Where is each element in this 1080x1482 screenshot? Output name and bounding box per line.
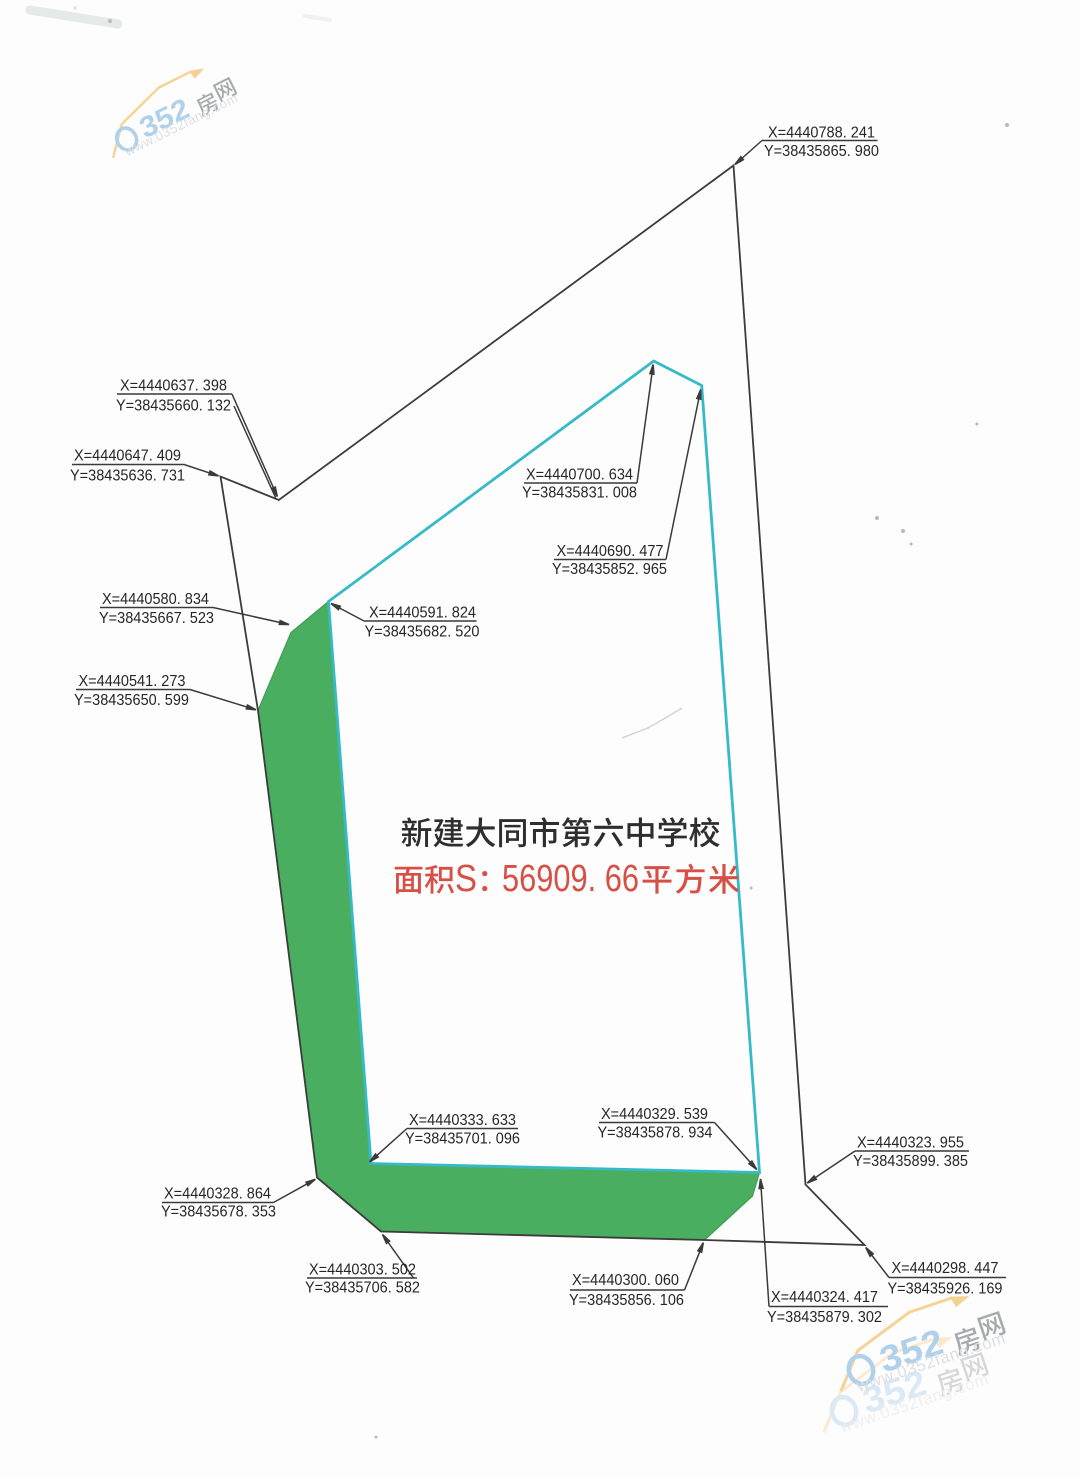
svg-text:X=4440324. 417: X=4440324. 417 xyxy=(771,1289,878,1306)
svg-text:X=4440300. 060: X=4440300. 060 xyxy=(572,1272,679,1289)
svg-text:X=4440637. 398: X=4440637. 398 xyxy=(120,378,227,395)
svg-text:Y=38435878. 934: Y=38435878. 934 xyxy=(598,1125,713,1142)
svg-text:Y=38435660. 132: Y=38435660. 132 xyxy=(116,398,231,415)
svg-text:X=4440329. 539: X=4440329. 539 xyxy=(601,1106,708,1123)
svg-text:X=4440328. 864: X=4440328. 864 xyxy=(164,1186,271,1203)
svg-text:X=4440591. 824: X=4440591. 824 xyxy=(369,605,476,622)
svg-text:X=4440541. 273: X=4440541. 273 xyxy=(79,673,186,690)
svg-text:X=4440298. 447: X=4440298. 447 xyxy=(892,1260,999,1277)
svg-text:Y=38435667. 523: Y=38435667. 523 xyxy=(99,610,214,627)
svg-text:X=4440788. 241: X=4440788. 241 xyxy=(768,125,875,142)
svg-text:Y=38435879. 302: Y=38435879. 302 xyxy=(767,1309,882,1326)
svg-text:Y=38435865. 980: Y=38435865. 980 xyxy=(764,143,879,160)
svg-text:S: S xyxy=(455,858,477,900)
svg-text:Y=38435926. 169: Y=38435926. 169 xyxy=(888,1281,1003,1298)
svg-text:X=4440303. 502: X=4440303. 502 xyxy=(309,1262,416,1279)
svg-text:Y=38435831. 008: Y=38435831. 008 xyxy=(522,485,637,502)
svg-text:X=4440580. 834: X=4440580. 834 xyxy=(102,591,209,608)
svg-text:X=4440647. 409: X=4440647. 409 xyxy=(74,448,181,465)
svg-text:X=4440323. 955: X=4440323. 955 xyxy=(857,1135,964,1152)
svg-text:X=4440333. 633: X=4440333. 633 xyxy=(409,1112,516,1129)
svg-text:Y=38435856. 106: Y=38435856. 106 xyxy=(569,1292,684,1309)
svg-text:X=4440690. 477: X=4440690. 477 xyxy=(557,543,664,560)
svg-text:Y=38435678. 353: Y=38435678. 353 xyxy=(161,1204,276,1221)
svg-text:Y=38435852. 965: Y=38435852. 965 xyxy=(552,561,667,578)
svg-text:Y=38435706. 582: Y=38435706. 582 xyxy=(305,1280,420,1297)
svg-text:Y=38435701. 096: Y=38435701. 096 xyxy=(405,1131,520,1148)
svg-text:Y=38435682. 520: Y=38435682. 520 xyxy=(365,624,480,641)
svg-text:Y=38435899. 385: Y=38435899. 385 xyxy=(853,1153,968,1170)
svg-text:X=4440700. 634: X=4440700. 634 xyxy=(526,467,633,484)
svg-text:Y=38435650. 599: Y=38435650. 599 xyxy=(74,692,189,709)
svg-text:56909. 66: 56909. 66 xyxy=(502,858,639,900)
svg-text:Y=38435636. 731: Y=38435636. 731 xyxy=(70,468,185,485)
